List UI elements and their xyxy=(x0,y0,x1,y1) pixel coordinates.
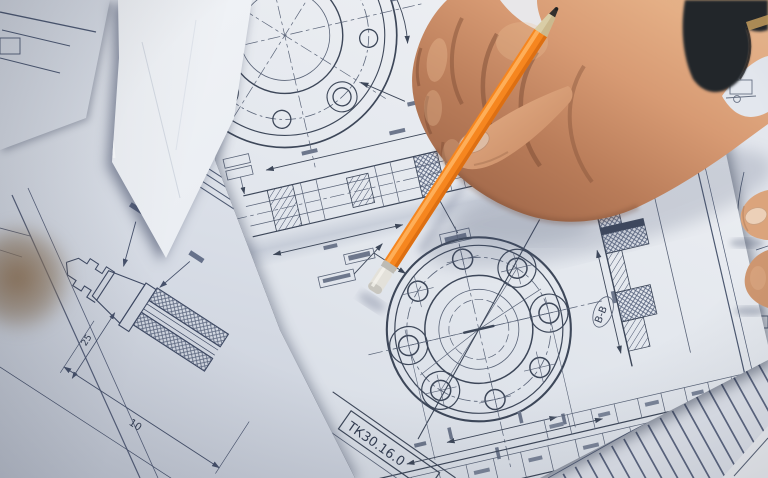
hand-and-pencil xyxy=(0,0,768,478)
photo-stage: Б-Б xyxy=(0,0,768,478)
